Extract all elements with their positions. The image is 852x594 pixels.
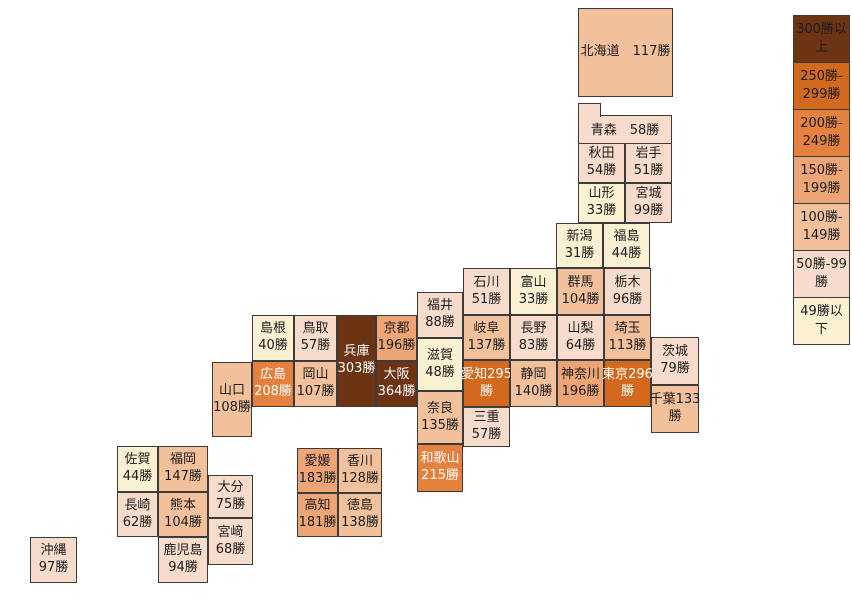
tile-label-line2: 64勝	[566, 338, 596, 355]
tile-label-line2: 104勝	[562, 292, 600, 309]
tile-label-line1: 福井	[427, 298, 453, 315]
pref-aomori-tab	[578, 103, 601, 117]
tile-label-line2: 31勝	[565, 246, 595, 263]
tile-label-line2: 94勝	[168, 560, 198, 577]
tile-label-line2: 57勝	[472, 427, 502, 444]
tile-label-line2: 勝	[480, 384, 493, 401]
pref-saitama: 埼玉113勝	[604, 315, 651, 360]
tile-label-line1: 山梨	[567, 321, 593, 338]
tile-label-line1: 静岡	[520, 367, 546, 384]
legend-label-line1: 200勝-	[800, 115, 843, 133]
tile-label-line2: 68勝	[216, 542, 246, 559]
pref-yamaguchi: 山口108勝	[212, 362, 252, 437]
legend-label-line2: 上	[815, 39, 828, 57]
pref-nara: 奈良135勝	[417, 391, 463, 444]
tile-label-line2: 96勝	[613, 292, 643, 309]
tile-label-line2: 181勝	[299, 515, 337, 532]
pref-hyogo: 兵庫303勝	[337, 315, 376, 407]
legend-label-line1: 50勝-99	[796, 256, 847, 274]
legend-item-100-149: 100勝-149勝	[793, 203, 850, 251]
legend: 300勝以上 250勝-299勝 200勝-249勝 150勝-199勝 100…	[793, 15, 850, 345]
pref-gifu: 岐阜137勝	[463, 315, 510, 360]
tile-label-line2: 54勝	[587, 163, 617, 180]
tile-label-line1: 愛媛	[304, 454, 330, 471]
pref-kochi: 高知181勝	[297, 493, 338, 537]
tile-label-line2: 79勝	[660, 361, 690, 378]
tile-label-line1: 福岡	[170, 452, 196, 469]
tile-label-line1: 石川	[473, 275, 499, 292]
pref-osaka: 大阪364勝	[376, 361, 417, 407]
tile-label-line2: 196勝	[378, 338, 416, 355]
tile-label-line1: 岡山	[302, 367, 328, 384]
legend-label-line2: 199勝	[803, 180, 841, 198]
tile-label-line1: 奈良	[427, 401, 453, 418]
tile-label-line2: 48勝	[425, 365, 455, 382]
tile-label-line2: 140勝	[515, 384, 553, 401]
legend-label-line2: 下	[815, 321, 828, 339]
tile-label-line1: 香川	[347, 454, 373, 471]
tile-label-line2: 196勝	[562, 384, 600, 401]
tile-label-line1: 三重	[473, 410, 499, 427]
tile-label-line1: 岐阜	[473, 321, 499, 338]
pref-aichi: 愛知295勝	[463, 360, 510, 407]
tile-label-line2: 33勝	[587, 203, 617, 220]
pref-hiroshima: 広島208勝	[252, 361, 294, 407]
pref-kagoshima: 鹿児島94勝	[158, 537, 208, 583]
tile-label-line2: 83勝	[519, 338, 549, 355]
tile-label-line1: 和歌山	[420, 451, 459, 468]
pref-ishikawa: 石川51勝	[463, 268, 510, 315]
tile-label-line1: 愛知295	[461, 367, 512, 384]
tile-label-line1: 宮城	[635, 186, 661, 203]
pref-kyoto: 京都196勝	[376, 315, 417, 361]
tile-label-line1: 長野	[520, 321, 546, 338]
pref-chiba: 千葉133勝	[651, 385, 699, 433]
tile-label-line2: 75勝	[216, 497, 246, 514]
tile-label-line2: 44勝	[612, 246, 642, 263]
tile-label-line1: 東京296	[602, 367, 653, 384]
tile-label-line1: 宮﨑	[217, 525, 243, 542]
tile-label-line2: 62勝	[123, 515, 153, 532]
legend-label-line1: 100勝-	[800, 209, 843, 227]
pref-kagawa: 香川128勝	[338, 448, 382, 493]
legend-item-50-99: 50勝-99勝	[793, 250, 850, 298]
tile-label-line1: 山形	[588, 186, 614, 203]
pref-miyagi: 宮城99勝	[625, 183, 672, 223]
tile-label-line2: 勝	[621, 384, 634, 401]
pref-fukuoka: 福岡147勝	[158, 446, 208, 492]
legend-label-line2: 299勝	[803, 86, 841, 104]
pref-kanagawa: 神奈川196勝	[557, 360, 604, 407]
tile-label-line2: 147勝	[164, 469, 202, 486]
tile-label-line1: 山口	[219, 383, 245, 400]
pref-tokyo: 東京296勝	[604, 360, 651, 407]
tile-label-line1: 大阪	[383, 367, 409, 384]
pref-kumamoto: 熊本104勝	[158, 492, 208, 537]
tile-label-line1: 群馬	[567, 275, 593, 292]
tile-label-line1: 福島	[613, 229, 639, 246]
pref-shimane: 島根40勝	[252, 315, 294, 361]
tile-label-line2: 97勝	[39, 560, 69, 577]
pref-wakayama: 和歌山215勝	[417, 444, 463, 492]
legend-item-150-199: 150勝-199勝	[793, 156, 850, 204]
legend-item-250-299: 250勝-299勝	[793, 62, 850, 110]
tile-label-line2: 113勝	[609, 338, 647, 355]
pref-toyama: 富山33勝	[510, 268, 557, 315]
pref-tottori: 鳥取57勝	[294, 315, 337, 361]
pref-mie: 三重57勝	[463, 407, 510, 447]
tile-label-line2: 44勝	[123, 469, 153, 486]
pref-ehime: 愛媛183勝	[297, 448, 338, 493]
tile-label-line1: 神奈川	[561, 367, 600, 384]
legend-item-49-below: 49勝以下	[793, 297, 850, 345]
pref-iwate: 岩手51勝	[625, 143, 672, 183]
pref-okinawa: 沖縄97勝	[30, 537, 77, 583]
legend-label-line1: 300勝以	[796, 21, 847, 39]
legend-label-line2: 勝	[815, 274, 828, 292]
pref-miyazaki: 宮﨑68勝	[208, 518, 253, 565]
tile-label-line1: 高知	[304, 498, 330, 515]
legend-label-line2: 149勝	[803, 227, 841, 245]
pref-fukui: 福井88勝	[417, 292, 463, 338]
tile-label-line1: 佐賀	[124, 452, 150, 469]
tile-label-line2: 40勝	[258, 338, 288, 355]
pref-nagano: 長野83勝	[510, 315, 557, 360]
tile-label-line1: 新潟	[566, 229, 592, 246]
tile-label-line2: 138勝	[341, 515, 379, 532]
pref-tokushima: 徳島138勝	[338, 493, 382, 537]
pref-yamagata: 山形33勝	[578, 183, 625, 223]
tile-label-line2: 208勝	[254, 384, 292, 401]
legend-label-line1: 150勝-	[800, 162, 843, 180]
tile-label-line1: 京都	[383, 321, 409, 338]
tile-label-line1: 大分	[217, 480, 243, 497]
pref-nagasaki: 長崎62勝	[117, 492, 158, 537]
tile-label-line2: 128勝	[341, 471, 379, 488]
legend-item-300-plus: 300勝以上	[793, 15, 850, 63]
pref-ibaraki: 茨城79勝	[651, 337, 699, 385]
tile-label-line1: 兵庫	[343, 344, 369, 361]
pref-okayama: 岡山107勝	[294, 361, 337, 407]
tile-label-line2: 183勝	[299, 471, 337, 488]
tile-label-line1: 島根	[260, 321, 286, 338]
legend-label-line1: 49勝以	[800, 303, 843, 321]
tile-label-line2: 135勝	[421, 418, 459, 435]
pref-shizuoka: 静岡140勝	[510, 360, 557, 407]
tile-label-line1: 千葉133	[650, 392, 701, 409]
tile-label-line1: 沖縄	[40, 543, 66, 560]
tile-label-line2: 33勝	[519, 292, 549, 309]
pref-hokkaido: 北海道 117勝	[578, 8, 673, 97]
legend-label-line1: 250勝-	[800, 68, 843, 86]
legend-item-200-249: 200勝-249勝	[793, 109, 850, 157]
tile-label-line2: 108勝	[213, 400, 251, 417]
tile-label-line1: 鹿児島	[163, 543, 202, 560]
tile-label-line2: 51勝	[472, 292, 502, 309]
japan-tile-map: 北海道 117勝 青森 58勝 秋田54勝 岩手51勝 山形33勝 宮城99勝 …	[0, 0, 852, 594]
tile-label-line1: 青森 58勝	[591, 123, 660, 140]
tile-label-line1: 鳥取	[302, 321, 328, 338]
pref-akita: 秋田54勝	[578, 143, 625, 183]
tile-label-line1: 北海道 117勝	[581, 44, 671, 61]
pref-saga: 佐賀44勝	[117, 446, 158, 492]
pref-niigata: 新潟31勝	[556, 223, 603, 268]
pref-fukushima: 福島44勝	[603, 223, 650, 268]
tile-label-line2: 88勝	[425, 315, 455, 332]
tile-label-line1: 栃木	[614, 275, 640, 292]
tile-label-line2: 107勝	[297, 384, 335, 401]
pref-tochigi: 栃木96勝	[604, 268, 651, 315]
tile-label-line1: 広島	[260, 367, 286, 384]
tile-label-line1: 富山	[520, 275, 546, 292]
tile-label-line1: 秋田	[588, 146, 614, 163]
pref-gunma: 群馬104勝	[557, 268, 604, 315]
tile-label-line1: 岩手	[635, 146, 661, 163]
tile-label-line1: 熊本	[170, 498, 196, 515]
tile-label-line1: 茨城	[662, 344, 688, 361]
tile-label-line1: 埼玉	[614, 321, 640, 338]
tile-label-line2: 99勝	[634, 203, 664, 220]
tile-label-line1: 滋賀	[427, 348, 453, 365]
tile-label-line2: 215勝	[421, 468, 459, 485]
pref-oita: 大分75勝	[208, 475, 253, 518]
pref-shiga: 滋賀48勝	[417, 338, 463, 391]
tile-label-line2: 104勝	[164, 515, 202, 532]
tile-label-line2: 303勝	[338, 361, 376, 378]
tile-label-line2: 364勝	[378, 384, 416, 401]
tile-label-line1: 長崎	[124, 498, 150, 515]
tile-label-line2: 51勝	[634, 163, 664, 180]
pref-yamanashi: 山梨64勝	[557, 315, 604, 360]
tile-label-line2: 57勝	[301, 338, 331, 355]
tile-label-line1: 徳島	[347, 498, 373, 515]
tile-label-line2: 137勝	[468, 338, 506, 355]
tile-label-line2: 勝	[668, 409, 681, 426]
legend-label-line2: 249勝	[803, 133, 841, 151]
